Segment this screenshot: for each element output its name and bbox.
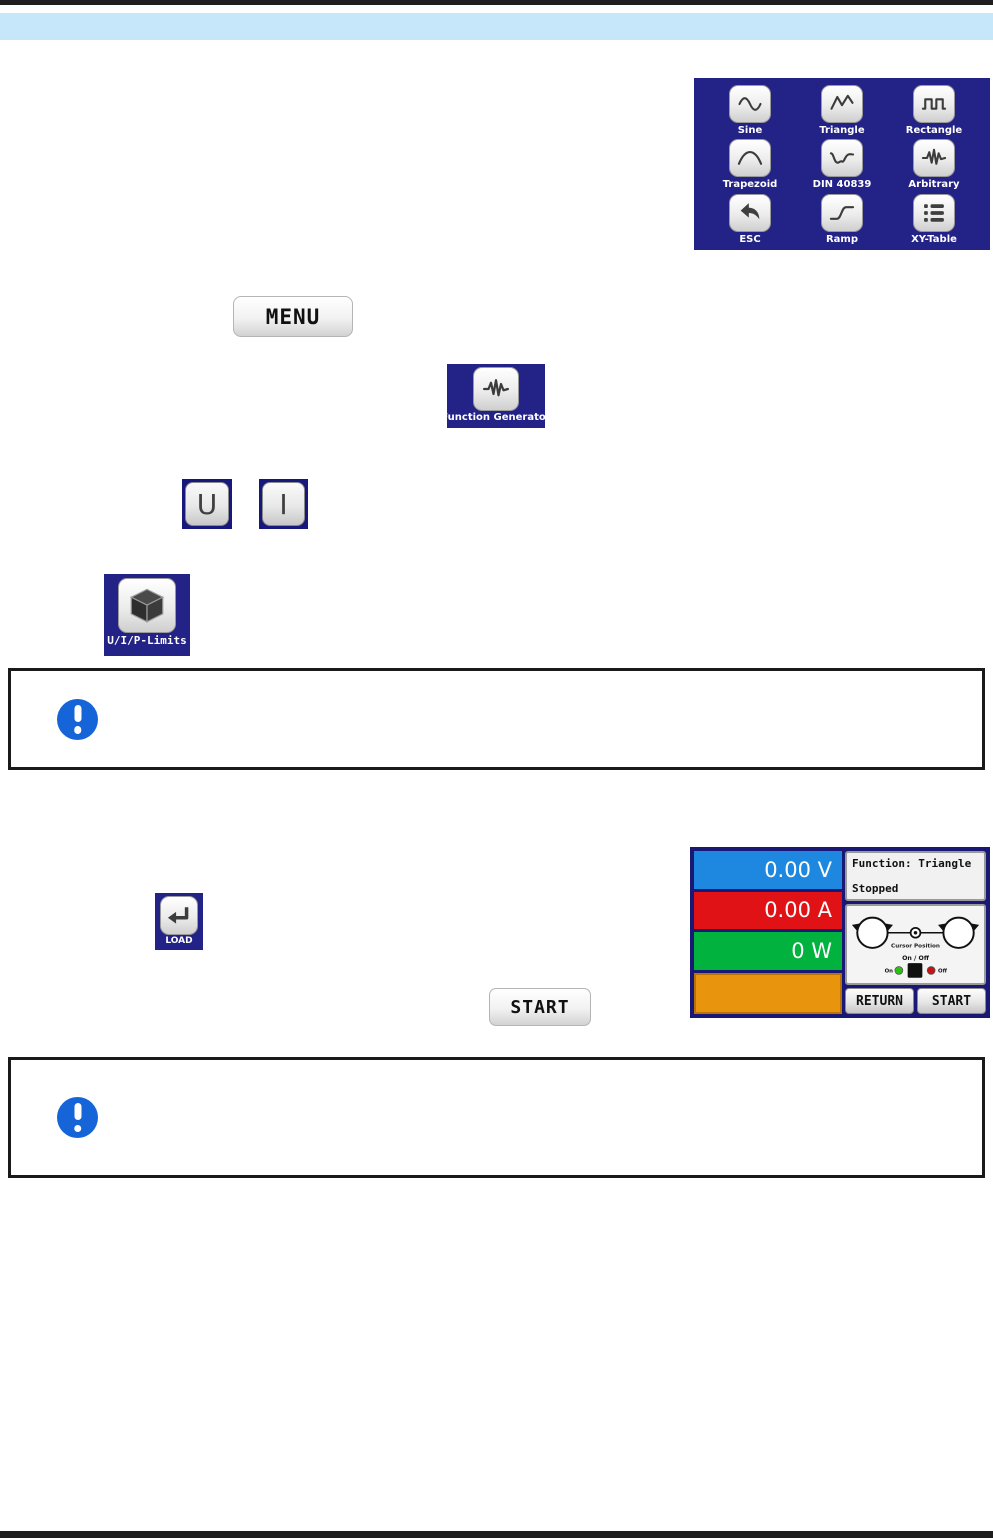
arbitrary-wave-icon <box>478 374 514 404</box>
function-status-panel: Function: Triangle Stopped <box>845 851 986 901</box>
menu-item-label: Arbitrary <box>908 179 959 190</box>
menu-item-arbitrary[interactable]: Arbitrary <box>888 139 980 193</box>
din-curve-button[interactable] <box>821 139 863 177</box>
off-led-icon <box>927 967 935 975</box>
tile-label: LOAD <box>165 936 192 946</box>
enter-arrow-icon <box>165 902 193 930</box>
on-label: On <box>885 968 894 974</box>
function-selection-menu: Sine Triangle Rectangle <box>694 78 990 250</box>
on-off-label: On / Off <box>902 955 930 962</box>
knob-hint-panel: Cursor Position On / Off On Off <box>845 904 986 985</box>
measurement-column: 0.00 V 0.00 A 0 W <box>694 851 842 1014</box>
section-header-band <box>0 13 993 40</box>
uip-limits-tile[interactable]: U/I/P-Limits <box>104 574 190 656</box>
exclamation-icon <box>57 699 98 740</box>
return-button[interactable]: RETURN <box>845 988 914 1014</box>
power-readout: 0 W <box>694 932 842 970</box>
u-key-button[interactable]: U <box>182 479 232 529</box>
load-tile[interactable]: LOAD <box>155 893 203 950</box>
menu-item-label: ESC <box>739 234 760 245</box>
manual-page: Sine Triangle Rectangle <box>0 0 993 1538</box>
exclamation-icon <box>57 1097 98 1138</box>
page-bottom-rule <box>0 1531 993 1538</box>
trapezoid-wave-icon <box>733 144 767 172</box>
tile-label: U/I/P-Limits <box>107 634 186 647</box>
esc-button[interactable] <box>729 194 771 232</box>
menu-item-label: Rectangle <box>906 125 962 136</box>
screen-start-button[interactable]: START <box>917 988 986 1014</box>
uip-limits-button[interactable] <box>118 578 176 633</box>
sine-button[interactable] <box>729 85 771 123</box>
arbitrary-wave-button[interactable] <box>913 139 955 177</box>
rectangle-wave-icon <box>917 90 951 118</box>
device-display: 0.00 V 0.00 A 0 W Function: Triangle Sto… <box>690 847 990 1018</box>
menu-item-label: Sine <box>738 125 763 136</box>
load-button[interactable] <box>160 896 198 935</box>
menu-item-label: Trapezoid <box>723 179 778 190</box>
back-arrow-icon <box>733 199 767 227</box>
onoff-pushbutton-icon <box>908 963 923 978</box>
menu-item-xy-table[interactable]: XY-Table <box>888 194 980 248</box>
din-curve-icon <box>825 144 859 172</box>
extra-bar <box>694 973 842 1015</box>
menu-item-ramp[interactable]: Ramp <box>796 194 888 248</box>
notice-box <box>8 1057 985 1178</box>
function-line: Function: Triangle <box>852 857 979 870</box>
function-generator-tile[interactable]: Function Generator <box>447 364 545 428</box>
rotary-knobs-icon: Cursor Position On / Off On Off <box>847 906 984 983</box>
menu-item-rectangle[interactable]: Rectangle <box>888 85 980 139</box>
menu-item-label: Ramp <box>826 234 858 245</box>
menu-item-din40839[interactable]: DIN 40839 <box>796 139 888 193</box>
arbitrary-wave-icon <box>917 144 951 172</box>
menu-item-trapezoid[interactable]: Trapezoid <box>704 139 796 193</box>
tile-label: Function Generator <box>441 412 550 423</box>
status-line: Stopped <box>852 882 979 895</box>
list-icon <box>917 199 951 227</box>
on-led-icon <box>895 967 903 975</box>
screen-button-row: RETURN START <box>845 988 986 1014</box>
menu-button[interactable]: MENU <box>233 296 353 337</box>
ramp-wave-icon <box>825 199 859 227</box>
status-column: Function: Triangle Stopped <box>845 851 986 1014</box>
cursor-position-label: Cursor Position <box>891 943 940 949</box>
menu-item-triangle[interactable]: Triangle <box>796 85 888 139</box>
menu-item-label: DIN 40839 <box>813 179 872 190</box>
menu-item-esc[interactable]: ESC <box>704 194 796 248</box>
triangle-wave-icon <box>825 90 859 118</box>
notice-box <box>8 668 985 770</box>
i-key-label: I <box>262 482 305 526</box>
sine-wave-icon <box>733 90 767 118</box>
voltage-readout: 0.00 V <box>694 851 842 889</box>
ramp-button[interactable] <box>821 194 863 232</box>
off-label: Off <box>938 968 948 974</box>
rectangle-button[interactable] <box>913 85 955 123</box>
menu-item-sine[interactable]: Sine <box>704 85 796 139</box>
start-button[interactable]: START <box>489 988 591 1026</box>
menu-item-label: Triangle <box>819 125 864 136</box>
u-key-label: U <box>185 482 229 526</box>
triangle-button[interactable] <box>821 85 863 123</box>
function-generator-button[interactable] <box>473 367 519 411</box>
xy-table-button[interactable] <box>913 194 955 232</box>
i-key-button[interactable]: I <box>259 479 308 529</box>
cube-icon <box>126 585 168 627</box>
current-readout: 0.00 A <box>694 892 842 930</box>
menu-item-label: XY-Table <box>911 234 957 245</box>
page-top-rule <box>0 0 993 5</box>
trapezoid-button[interactable] <box>729 139 771 177</box>
